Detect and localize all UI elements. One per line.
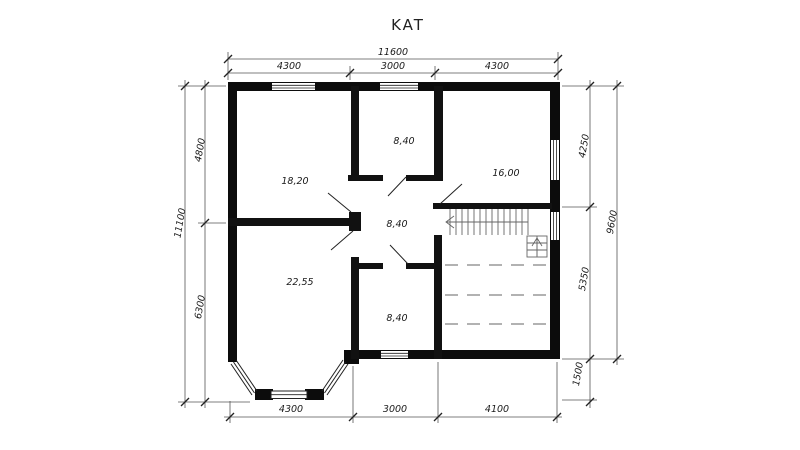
floor-plan-drawing: KAT <box>0 0 800 450</box>
drawing-title: KAT <box>391 16 425 34</box>
door-room-8-40-bottom-icon <box>390 245 408 264</box>
wall-left-horizontal <box>228 218 359 226</box>
door-room-18-20-icon <box>328 193 351 212</box>
bay-corner-right <box>305 389 324 400</box>
window-right-lower-icon <box>551 212 559 240</box>
window-top-left-icon <box>272 83 315 90</box>
bay-window-left-icon <box>231 360 257 395</box>
room-label-18-20: 18,20 <box>281 176 308 187</box>
wall-stair-corridor <box>433 203 552 209</box>
wall-hall-bottom-left <box>355 263 383 269</box>
dim-top-1: 4300 <box>277 61 301 72</box>
door-room-22-55-icon <box>331 231 353 250</box>
wall-center-vertical-top <box>351 86 359 180</box>
bay-window-right-icon <box>322 360 348 395</box>
window-right-upper-icon <box>551 140 559 180</box>
door-room-16-00-icon <box>440 184 462 204</box>
dim-right-3: 1500 <box>571 361 586 387</box>
dim-left-total: 11100 <box>172 207 188 239</box>
wall-hall-bottom-right <box>406 263 438 269</box>
wall-bottom <box>344 350 560 359</box>
window-top-middle-icon <box>380 83 418 90</box>
dim-left-2: 6300 <box>193 294 208 320</box>
wall-hall-top-left <box>348 175 383 181</box>
room-label-16-00: 16,00 <box>492 168 519 179</box>
wall-center-vertical-bottom <box>351 257 359 359</box>
window-bottom-icon <box>381 351 408 358</box>
dim-bottom-1: 4300 <box>279 404 303 415</box>
bay-window-bottom-icon <box>271 391 307 399</box>
room-label-8-40-top: 8,40 <box>393 136 414 147</box>
room-label-8-40-bottom: 8,40 <box>386 313 407 324</box>
dim-bottom-3: 4100 <box>485 404 509 415</box>
wall-right-vertical-top <box>434 86 443 180</box>
room-label-22-55: 22,55 <box>286 277 313 288</box>
room-label-hall-8-40: 8,40 <box>386 219 407 230</box>
dim-top-2: 3000 <box>381 61 405 72</box>
stair-up-arrow-icon <box>532 238 542 256</box>
void-dashed-lines <box>445 265 551 324</box>
bay-corner-left <box>255 389 273 400</box>
door-room-8-40-top-icon <box>388 177 406 196</box>
wall-right-vertical-bottom <box>434 235 442 359</box>
dim-bottom-2: 3000 <box>383 404 407 415</box>
staircase <box>445 209 551 324</box>
dim-left-1: 4800 <box>193 137 208 163</box>
floor-plan-page: KAT <box>0 0 800 450</box>
dim-top-3: 4300 <box>485 61 509 72</box>
dim-right-total: 9600 <box>605 209 620 235</box>
dim-top-total: 11600 <box>378 47 408 58</box>
room-labels: 18,20 8,40 16,00 8,40 22,55 8,40 <box>281 136 519 324</box>
